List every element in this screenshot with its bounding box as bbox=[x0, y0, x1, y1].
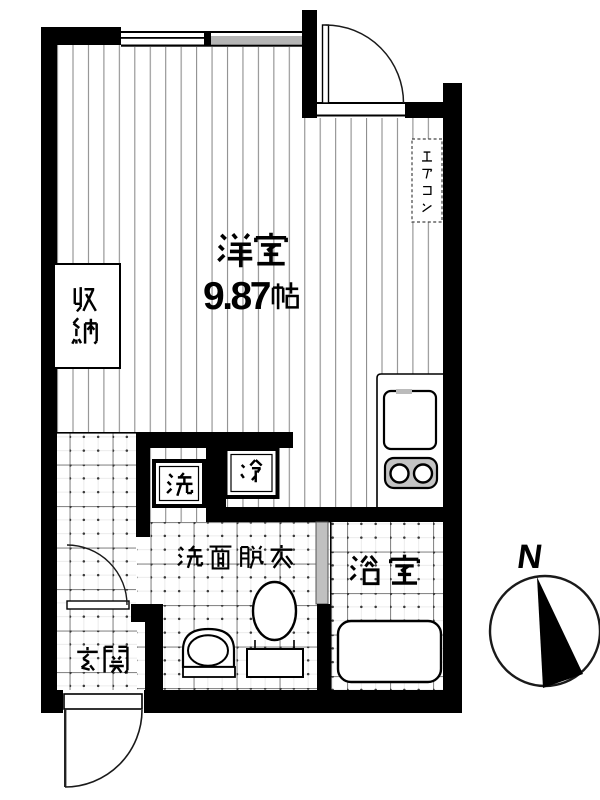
svg-text:9.87: 9.87 bbox=[203, 275, 270, 318]
